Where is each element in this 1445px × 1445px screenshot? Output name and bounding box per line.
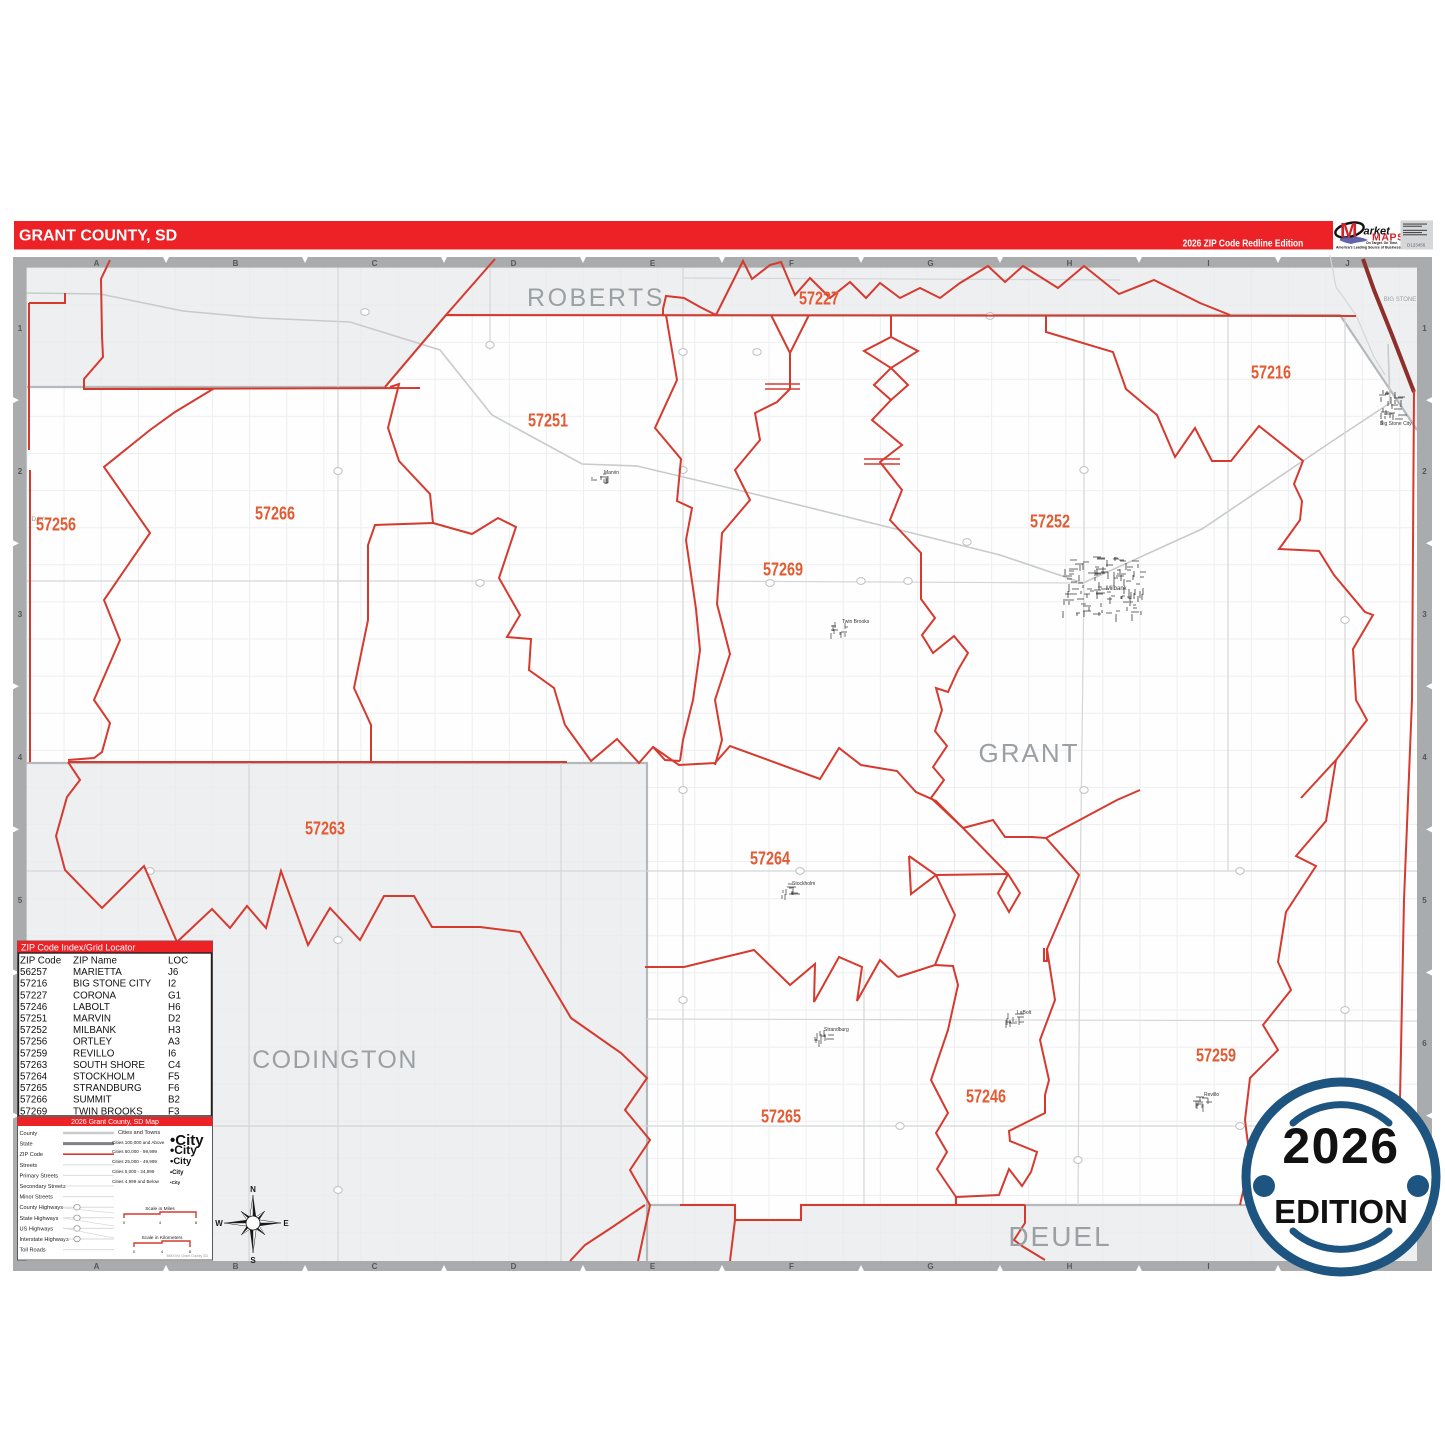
svg-text:Twin Brooks: Twin Brooks bbox=[842, 619, 870, 625]
svg-text:4: 4 bbox=[1422, 753, 1427, 762]
svg-text:STRANDBURG: STRANDBURG bbox=[73, 1083, 142, 1094]
svg-text:57227: 57227 bbox=[799, 288, 839, 309]
svg-text:America’s Leading Source of B: America’s Leading Source of Business Map… bbox=[1336, 245, 1411, 249]
svg-text:MMXXVI Grant County SD: MMXXVI Grant County SD bbox=[167, 1254, 209, 1258]
svg-text:57259: 57259 bbox=[1196, 1045, 1236, 1066]
svg-text:57251: 57251 bbox=[528, 410, 568, 431]
svg-text:1: 1 bbox=[1422, 324, 1427, 333]
svg-text:Cities 50,000 - 99,999: Cities 50,000 - 99,999 bbox=[112, 1149, 157, 1154]
svg-text:On Target. On Time.: On Target. On Time. bbox=[1366, 241, 1398, 245]
svg-text:EDITION: EDITION bbox=[1274, 1193, 1408, 1230]
svg-text:57252: 57252 bbox=[20, 1025, 47, 1036]
svg-text:Strandburg: Strandburg bbox=[824, 1027, 849, 1033]
svg-text:Cities 100,000 and Above: Cities 100,000 and Above bbox=[112, 1140, 165, 1145]
svg-text:D123456: D123456 bbox=[1407, 243, 1426, 248]
svg-text:Interstate Highways: Interstate Highways bbox=[20, 1237, 69, 1243]
svg-text:5: 5 bbox=[1422, 896, 1427, 905]
svg-text:G: G bbox=[927, 259, 933, 268]
svg-text:S: S bbox=[250, 1256, 256, 1265]
svg-text:TWIN BROOKS: TWIN BROOKS bbox=[73, 1106, 143, 1117]
svg-text:Cities 4,999 and Below: Cities 4,999 and Below bbox=[112, 1179, 160, 1184]
svg-text:State: State bbox=[20, 1142, 33, 1148]
svg-text:CODINGTON: CODINGTON bbox=[252, 1046, 418, 1074]
svg-text:H: H bbox=[1067, 1262, 1073, 1271]
svg-text:LOC: LOC bbox=[168, 956, 188, 967]
svg-text:B2: B2 bbox=[168, 1095, 180, 1106]
svg-text:Toll Roads: Toll Roads bbox=[20, 1248, 46, 1254]
svg-text:County: County bbox=[20, 1131, 38, 1137]
svg-text:Cities and Towns: Cities and Towns bbox=[118, 1130, 160, 1136]
svg-text:57216: 57216 bbox=[1251, 362, 1291, 383]
svg-text:C: C bbox=[372, 259, 378, 268]
svg-text:2026 Grant County, SD Map: 2026 Grant County, SD Map bbox=[71, 1119, 159, 1126]
svg-text:H: H bbox=[1067, 259, 1073, 268]
svg-text:G1: G1 bbox=[168, 990, 181, 1001]
svg-text:•City: •City bbox=[170, 1180, 181, 1185]
svg-text:GRANT COUNTY, SD: GRANT COUNTY, SD bbox=[19, 228, 177, 245]
svg-text:E: E bbox=[283, 1219, 289, 1228]
svg-text:E: E bbox=[650, 1262, 656, 1271]
svg-text:57266: 57266 bbox=[255, 503, 295, 524]
svg-text:I2: I2 bbox=[168, 979, 176, 990]
svg-text:2026 ZIP Code Redline Edition: 2026 ZIP Code Redline Edition bbox=[1183, 237, 1304, 249]
svg-text:57252: 57252 bbox=[1030, 511, 1070, 532]
svg-text:ORTLEY: ORTLEY bbox=[73, 1037, 112, 1048]
svg-text:BIG STONE: BIG STONE bbox=[1384, 297, 1417, 303]
svg-text:•City: •City bbox=[170, 1156, 192, 1167]
svg-text:5: 5 bbox=[18, 896, 23, 905]
svg-text:ZIP Code: ZIP Code bbox=[20, 956, 62, 967]
svg-text:2026: 2026 bbox=[1282, 1118, 1399, 1174]
svg-text:D: D bbox=[511, 1262, 517, 1271]
svg-text:STOCKHOLM: STOCKHOLM bbox=[73, 1072, 135, 1083]
svg-text:57259: 57259 bbox=[20, 1048, 47, 1059]
svg-text:Secondary Streets: Secondary Streets bbox=[20, 1184, 66, 1190]
svg-text:MARVIN: MARVIN bbox=[73, 1014, 111, 1025]
svg-text:C4: C4 bbox=[168, 1060, 181, 1071]
svg-text:Cities 5,000 - 24,999: Cities 5,000 - 24,999 bbox=[112, 1169, 155, 1174]
svg-text:ZIP Name: ZIP Name bbox=[73, 956, 117, 967]
svg-text:DEUEL: DEUEL bbox=[1008, 1221, 1111, 1252]
svg-text:Streets: Streets bbox=[20, 1163, 38, 1169]
svg-text:B: B bbox=[233, 1262, 239, 1271]
svg-text:57263: 57263 bbox=[20, 1060, 48, 1071]
svg-text:J: J bbox=[1345, 259, 1349, 268]
svg-text:F: F bbox=[789, 1262, 794, 1271]
svg-text:56257: 56257 bbox=[20, 967, 47, 978]
svg-text:REVILLO: REVILLO bbox=[73, 1048, 115, 1059]
svg-text:Scale in Miles: Scale in Miles bbox=[145, 1206, 175, 1212]
svg-text:Big Stone City: Big Stone City bbox=[1380, 421, 1412, 427]
svg-text:ZIP Code Index/Grid Locator: ZIP Code Index/Grid Locator bbox=[21, 943, 135, 953]
svg-text:Revillo: Revillo bbox=[1204, 1092, 1219, 1098]
svg-text:MILBANK: MILBANK bbox=[73, 1025, 116, 1036]
svg-text:4: 4 bbox=[18, 753, 23, 762]
svg-text:E: E bbox=[650, 259, 656, 268]
svg-text:57269: 57269 bbox=[763, 559, 803, 580]
svg-text:A: A bbox=[94, 259, 100, 268]
svg-text:D: D bbox=[511, 259, 517, 268]
svg-text:Stockholm: Stockholm bbox=[792, 881, 815, 887]
svg-text:N: N bbox=[250, 1185, 256, 1194]
svg-text:Minor Streets: Minor Streets bbox=[20, 1195, 53, 1201]
svg-text:Primary Streets: Primary Streets bbox=[20, 1173, 59, 1179]
svg-text:57251: 57251 bbox=[20, 1014, 47, 1025]
svg-text:3: 3 bbox=[18, 610, 23, 619]
svg-text:F5: F5 bbox=[168, 1072, 180, 1083]
svg-text:B: B bbox=[233, 259, 239, 268]
svg-text:I: I bbox=[1207, 1262, 1209, 1271]
svg-text:County Highways: County Highways bbox=[20, 1205, 64, 1211]
svg-text:F: F bbox=[789, 259, 794, 268]
svg-text:57256: 57256 bbox=[36, 514, 76, 535]
svg-text:H6: H6 bbox=[168, 1002, 181, 1013]
svg-text:G: G bbox=[927, 1262, 933, 1271]
svg-text:•City: •City bbox=[170, 1143, 197, 1157]
svg-text:CORONA: CORONA bbox=[73, 990, 116, 1001]
svg-text:LaBolt: LaBolt bbox=[1017, 1010, 1032, 1016]
svg-text:LABOLT: LABOLT bbox=[73, 1002, 110, 1013]
svg-text:57227: 57227 bbox=[20, 990, 47, 1001]
svg-text:F3: F3 bbox=[168, 1106, 180, 1117]
svg-text:BIG STONE CITY: BIG STONE CITY bbox=[73, 979, 152, 990]
svg-text:J6: J6 bbox=[168, 967, 179, 978]
svg-text:Cities 25,000 - 49,999: Cities 25,000 - 49,999 bbox=[112, 1159, 157, 1164]
svg-text:A3: A3 bbox=[168, 1037, 181, 1048]
svg-text:57265: 57265 bbox=[20, 1083, 48, 1094]
svg-text:6: 6 bbox=[1422, 1039, 1427, 1048]
svg-text:2: 2 bbox=[1422, 467, 1427, 476]
svg-text:57264: 57264 bbox=[20, 1072, 48, 1083]
svg-text:57264: 57264 bbox=[750, 848, 791, 869]
svg-text:MARIETTA: MARIETTA bbox=[73, 967, 122, 978]
svg-text:Marvin: Marvin bbox=[604, 470, 619, 476]
svg-text:D2: D2 bbox=[168, 1014, 181, 1025]
svg-text:I: I bbox=[1207, 259, 1209, 268]
svg-text:State Highways: State Highways bbox=[20, 1216, 59, 1222]
svg-text:ROBERTS: ROBERTS bbox=[527, 284, 665, 312]
svg-text:A: A bbox=[94, 1262, 100, 1271]
svg-text:57246: 57246 bbox=[20, 1002, 48, 1013]
svg-text:H3: H3 bbox=[168, 1025, 181, 1036]
svg-text:Scale in Kilometers: Scale in Kilometers bbox=[141, 1235, 183, 1241]
svg-text:GRANT: GRANT bbox=[979, 738, 1080, 768]
svg-text:57256: 57256 bbox=[20, 1037, 48, 1048]
svg-text:ZIP Code: ZIP Code bbox=[20, 1152, 44, 1158]
svg-text:57266: 57266 bbox=[20, 1095, 48, 1106]
svg-text:57216: 57216 bbox=[20, 979, 48, 990]
svg-text:57269: 57269 bbox=[20, 1106, 47, 1117]
svg-text:1: 1 bbox=[18, 324, 23, 333]
svg-text:US Highways: US Highways bbox=[20, 1226, 54, 1232]
svg-text:Milbank: Milbank bbox=[1106, 586, 1128, 592]
svg-text:C: C bbox=[372, 1262, 378, 1271]
svg-text:W: W bbox=[215, 1219, 223, 1228]
svg-text:F6: F6 bbox=[168, 1083, 180, 1094]
svg-text:57246: 57246 bbox=[966, 1086, 1006, 1107]
svg-text:I6: I6 bbox=[168, 1048, 177, 1059]
svg-text:2: 2 bbox=[18, 467, 23, 476]
svg-text:57263: 57263 bbox=[305, 818, 345, 839]
svg-text:3: 3 bbox=[1422, 610, 1427, 619]
svg-text:57265: 57265 bbox=[761, 1106, 801, 1127]
svg-text:•City: •City bbox=[170, 1170, 184, 1176]
svg-text:SUMMIT: SUMMIT bbox=[73, 1095, 112, 1106]
svg-text:SOUTH SHORE: SOUTH SHORE bbox=[73, 1060, 145, 1071]
